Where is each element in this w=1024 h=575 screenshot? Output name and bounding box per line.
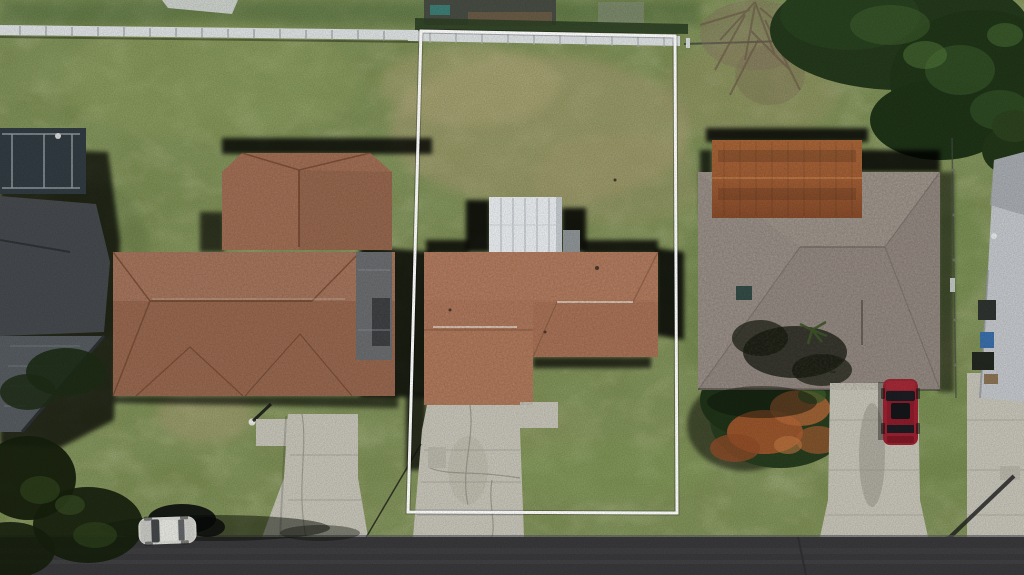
- aerial-photo: [0, 0, 1024, 575]
- aerial-photo-canvas: [0, 0, 1024, 575]
- photo-grain: [0, 0, 1024, 575]
